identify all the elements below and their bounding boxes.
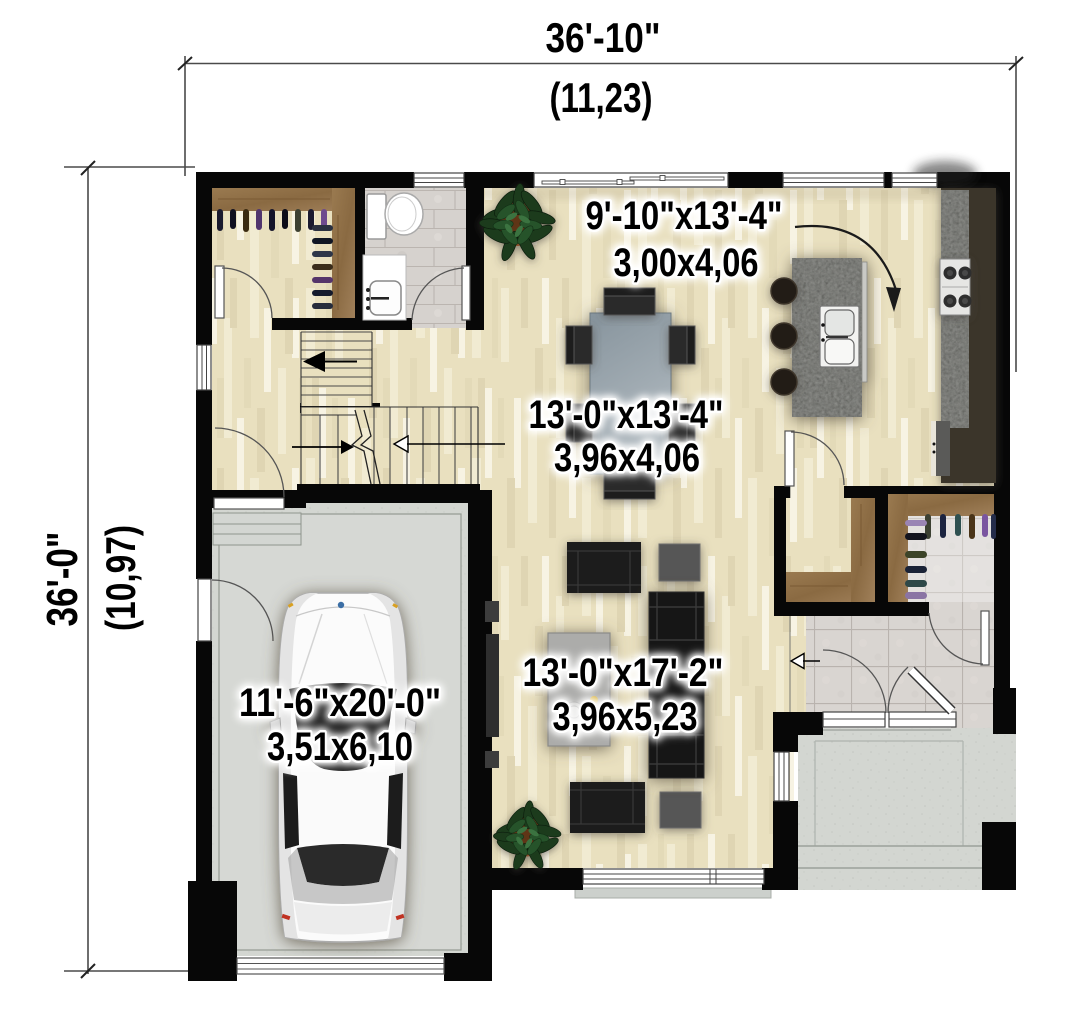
svg-text:3,51x6,10: 3,51x6,10 [267, 725, 413, 769]
svg-text:(10,97): (10,97) [97, 525, 144, 631]
svg-text:3,96x4,06: 3,96x4,06 [554, 436, 700, 480]
svg-text:36'-10": 36'-10" [546, 14, 661, 61]
svg-text:11'-6"x20'-0": 11'-6"x20'-0" [239, 681, 441, 725]
svg-text:9'-10"x13'-4": 9'-10"x13'-4" [586, 194, 783, 238]
svg-text:(11,23): (11,23) [550, 74, 653, 121]
svg-text:13'-0"x17'-2": 13'-0"x17'-2" [523, 651, 724, 695]
svg-text:36'-0": 36'-0" [38, 532, 87, 627]
svg-text:3,96x5,23: 3,96x5,23 [553, 695, 698, 739]
svg-text:3,00x4,06: 3,00x4,06 [614, 241, 759, 285]
svg-text:13'-0"x13'-4": 13'-0"x13'-4" [529, 393, 724, 437]
